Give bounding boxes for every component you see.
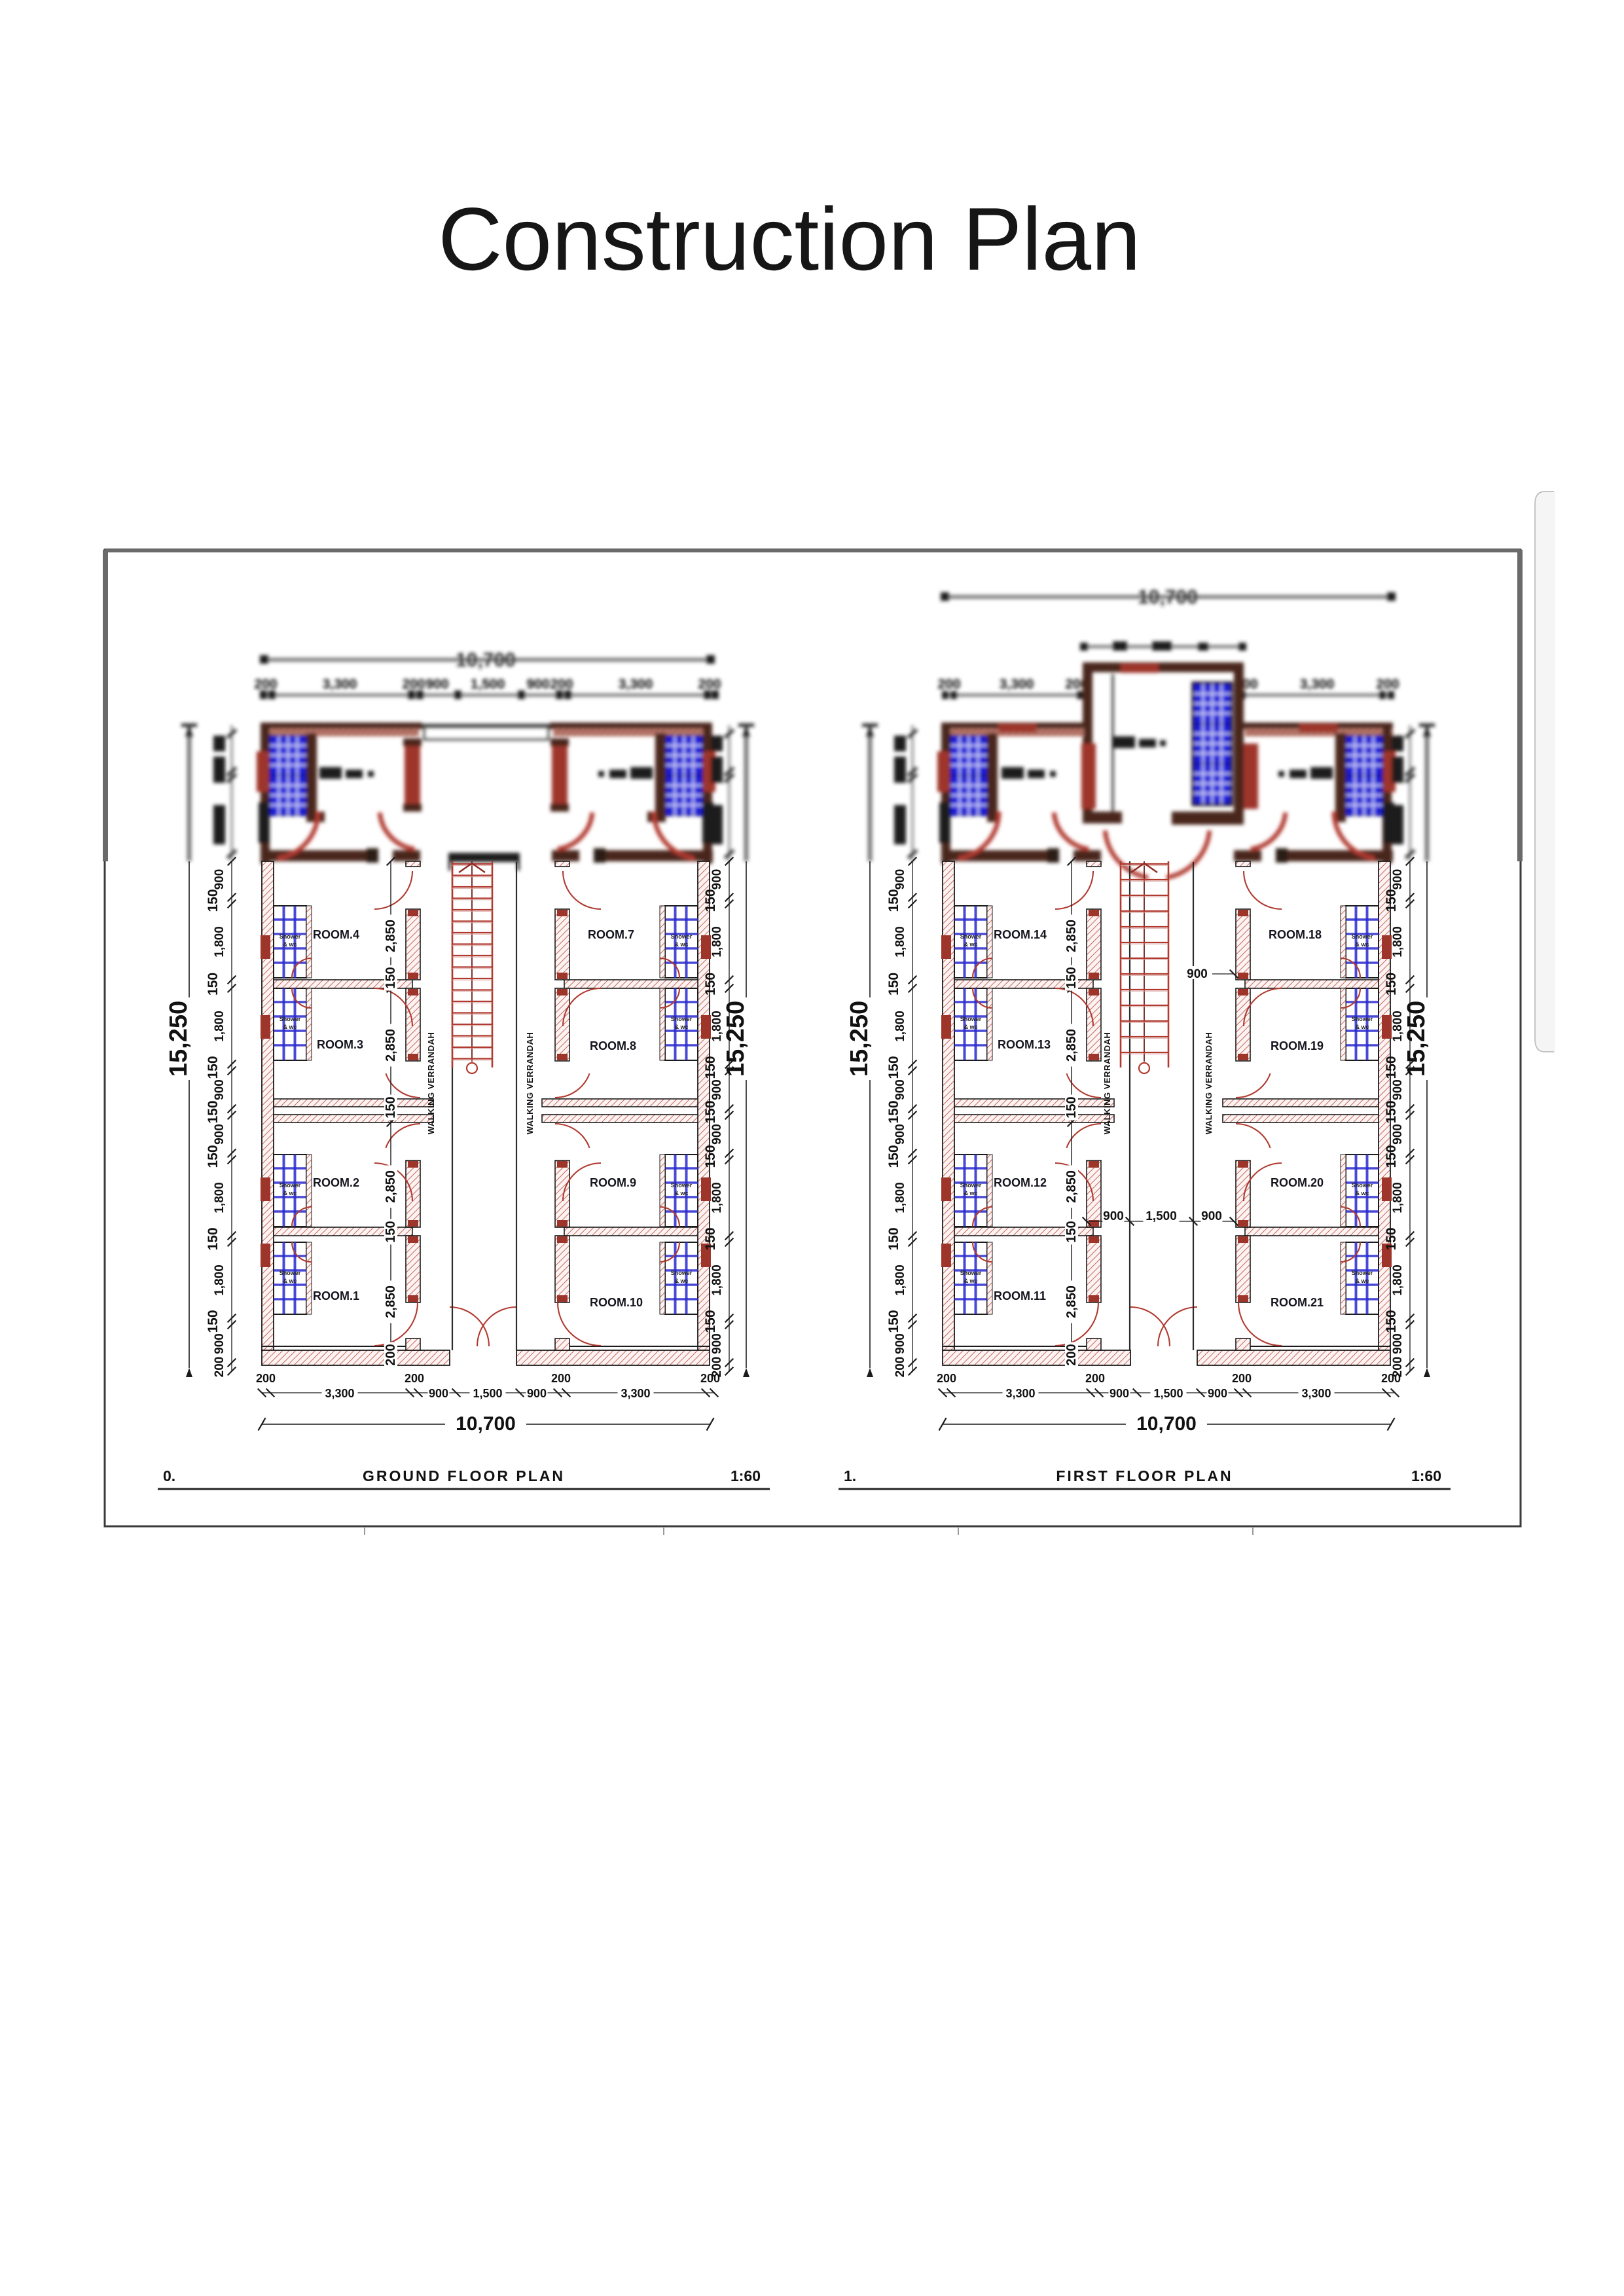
svg-text:1,500: 1,500 xyxy=(471,677,505,692)
svg-text:2,850: 2,850 xyxy=(384,1285,398,1318)
svg-text:900: 900 xyxy=(213,869,226,890)
svg-text:900: 900 xyxy=(893,869,907,890)
svg-text:150: 150 xyxy=(206,1145,221,1168)
svg-text:900: 900 xyxy=(1201,1210,1222,1223)
svg-text:& wc: & wc xyxy=(674,1190,688,1196)
svg-text:200: 200 xyxy=(1085,1372,1105,1385)
svg-text:150: 150 xyxy=(1064,1096,1079,1118)
svg-text:ROOM.7: ROOM.7 xyxy=(588,928,634,941)
svg-text:2,850: 2,850 xyxy=(384,1029,398,1062)
svg-text:900: 900 xyxy=(213,1079,226,1100)
svg-text:900: 900 xyxy=(1103,1210,1124,1223)
svg-text:Shower: Shower xyxy=(671,1182,693,1189)
svg-text:900: 900 xyxy=(893,1079,907,1100)
svg-text:ROOM.8: ROOM.8 xyxy=(590,1039,636,1052)
svg-text:Shower: Shower xyxy=(280,1270,301,1276)
svg-text:3,300: 3,300 xyxy=(1300,677,1335,692)
svg-text:Shower: Shower xyxy=(1352,1016,1373,1022)
svg-text:& wc: & wc xyxy=(283,1024,297,1030)
svg-text:150: 150 xyxy=(206,889,221,912)
svg-text:150: 150 xyxy=(703,1310,718,1333)
svg-text:1,800: 1,800 xyxy=(1391,1265,1405,1296)
svg-text:ROOM.11: ROOM.11 xyxy=(994,1289,1046,1302)
svg-text:900: 900 xyxy=(429,1387,448,1400)
svg-text:150: 150 xyxy=(703,973,718,996)
svg-text:ROOM.3: ROOM.3 xyxy=(317,1038,363,1051)
svg-text:Shower: Shower xyxy=(280,1016,301,1022)
svg-text:15,250: 15,250 xyxy=(165,1001,192,1077)
svg-text:& wc: & wc xyxy=(674,1278,688,1284)
svg-text:Construction Plan: Construction Plan xyxy=(438,189,1140,289)
svg-text:& wc: & wc xyxy=(1355,1278,1369,1284)
svg-text:Shower: Shower xyxy=(671,933,693,940)
svg-text:1,800: 1,800 xyxy=(213,1011,226,1042)
svg-text:& wc: & wc xyxy=(674,941,688,948)
svg-text:150: 150 xyxy=(206,973,221,996)
svg-text:900: 900 xyxy=(710,869,724,890)
svg-text:3,300: 3,300 xyxy=(1005,1387,1035,1400)
svg-text:ROOM.10: ROOM.10 xyxy=(590,1296,643,1309)
svg-text:150: 150 xyxy=(1384,1056,1399,1079)
svg-text:900: 900 xyxy=(213,1124,226,1145)
svg-text:2,850: 2,850 xyxy=(384,920,398,952)
svg-text:150: 150 xyxy=(206,1227,221,1250)
svg-text:Shower: Shower xyxy=(960,933,982,940)
svg-text:& wc: & wc xyxy=(964,941,977,948)
svg-text:1,800: 1,800 xyxy=(893,1011,907,1042)
svg-text:1,500: 1,500 xyxy=(1146,1210,1177,1223)
svg-text:0.: 0. xyxy=(163,1467,175,1484)
svg-text:150: 150 xyxy=(886,1056,901,1079)
svg-text:2,850: 2,850 xyxy=(1064,1029,1079,1062)
svg-text:900: 900 xyxy=(1208,1387,1227,1400)
svg-text:10,700: 10,700 xyxy=(456,649,516,671)
svg-text:3,300: 3,300 xyxy=(621,1387,650,1400)
svg-text:ROOM.20: ROOM.20 xyxy=(1271,1176,1324,1189)
svg-text:200: 200 xyxy=(937,1372,956,1385)
svg-text:200: 200 xyxy=(405,1372,424,1385)
svg-text:150: 150 xyxy=(886,1227,901,1250)
svg-text:1,800: 1,800 xyxy=(893,1182,907,1213)
svg-text:900: 900 xyxy=(1391,869,1405,890)
svg-text:2,850: 2,850 xyxy=(1064,1170,1079,1203)
svg-text:2,850: 2,850 xyxy=(1064,1285,1079,1318)
svg-text:150: 150 xyxy=(384,967,398,988)
svg-text:150: 150 xyxy=(1384,1145,1399,1168)
svg-text:2,850: 2,850 xyxy=(384,1170,398,1203)
svg-text:Shower: Shower xyxy=(960,1182,982,1189)
svg-text:ROOM.14: ROOM.14 xyxy=(994,928,1047,941)
svg-text:15,250: 15,250 xyxy=(1403,1001,1430,1077)
svg-text:Shower: Shower xyxy=(671,1270,693,1276)
svg-text:1,800: 1,800 xyxy=(893,926,907,958)
svg-text:& wc: & wc xyxy=(964,1024,977,1030)
svg-text:150: 150 xyxy=(206,1310,221,1333)
svg-text:900: 900 xyxy=(710,1124,724,1145)
svg-text:ROOM.9: ROOM.9 xyxy=(590,1176,636,1189)
svg-text:900: 900 xyxy=(1391,1333,1405,1354)
svg-text:900: 900 xyxy=(1391,1079,1405,1100)
svg-text:3,300: 3,300 xyxy=(1301,1387,1331,1400)
svg-text:ROOM.19: ROOM.19 xyxy=(1271,1039,1324,1052)
svg-text:3,300: 3,300 xyxy=(323,677,357,692)
svg-text:1,800: 1,800 xyxy=(710,1182,724,1213)
svg-text:WALKING VERRANDAH: WALKING VERRANDAH xyxy=(1102,1032,1112,1135)
svg-text:1,800: 1,800 xyxy=(893,1265,907,1296)
svg-text:150: 150 xyxy=(1064,1221,1079,1242)
svg-text:WALKING VERRANDAH: WALKING VERRANDAH xyxy=(1204,1032,1214,1135)
svg-text:& wc: & wc xyxy=(674,1024,688,1030)
svg-text:900: 900 xyxy=(710,1079,724,1100)
svg-text:Shower: Shower xyxy=(1352,1270,1373,1276)
svg-text:1,500: 1,500 xyxy=(1153,1387,1183,1400)
svg-text:WALKING VERRANDAH: WALKING VERRANDAH xyxy=(525,1032,535,1135)
svg-text:& wc: & wc xyxy=(964,1278,977,1284)
svg-text:WALKING VERRANDAH: WALKING VERRANDAH xyxy=(426,1032,436,1135)
svg-text:10,700: 10,700 xyxy=(1136,1413,1197,1435)
svg-text:200: 200 xyxy=(1381,1372,1401,1385)
svg-text:1.: 1. xyxy=(844,1467,856,1484)
svg-text:ROOM.21: ROOM.21 xyxy=(1271,1296,1324,1309)
svg-text:1,800: 1,800 xyxy=(213,1265,226,1296)
svg-text:150: 150 xyxy=(1384,1100,1399,1123)
svg-text:200: 200 xyxy=(698,677,721,692)
svg-text:& wc: & wc xyxy=(283,941,297,948)
svg-text:150: 150 xyxy=(886,889,901,912)
svg-text:1,800: 1,800 xyxy=(213,1182,226,1213)
svg-text:ROOM.1: ROOM.1 xyxy=(313,1289,359,1302)
svg-text:200: 200 xyxy=(1064,1344,1079,1365)
svg-text:3,300: 3,300 xyxy=(325,1387,354,1400)
svg-text:15,250: 15,250 xyxy=(846,1001,873,1077)
svg-text:3,300: 3,300 xyxy=(619,677,653,692)
svg-text:10,700: 10,700 xyxy=(456,1413,516,1435)
svg-text:900: 900 xyxy=(1391,1124,1405,1145)
svg-text:200: 200 xyxy=(256,1372,276,1385)
svg-text:1:60: 1:60 xyxy=(731,1467,761,1484)
svg-text:& wc: & wc xyxy=(1355,941,1369,948)
svg-text:& wc: & wc xyxy=(1355,1024,1369,1030)
svg-text:Shower: Shower xyxy=(960,1016,982,1022)
svg-text:10,700: 10,700 xyxy=(1138,586,1198,608)
svg-text:ROOM.13: ROOM.13 xyxy=(998,1038,1051,1051)
svg-text:Shower: Shower xyxy=(280,1182,301,1189)
svg-text:900: 900 xyxy=(893,1124,907,1145)
svg-text:150: 150 xyxy=(703,1145,718,1168)
svg-text:Shower: Shower xyxy=(1352,1182,1373,1189)
svg-text:150: 150 xyxy=(886,1145,901,1168)
svg-text:ROOM.2: ROOM.2 xyxy=(313,1176,359,1189)
svg-text:150: 150 xyxy=(1064,967,1079,988)
svg-text:Shower: Shower xyxy=(960,1270,982,1276)
svg-text:& wc: & wc xyxy=(964,1190,977,1196)
svg-text:900: 900 xyxy=(1110,1387,1129,1400)
svg-text:200: 200 xyxy=(893,1357,907,1378)
svg-text:& wc: & wc xyxy=(283,1190,297,1196)
svg-text:900: 900 xyxy=(893,1333,907,1354)
svg-text:1,800: 1,800 xyxy=(710,1265,724,1296)
svg-text:ROOM.18: ROOM.18 xyxy=(1269,928,1322,941)
svg-text:200: 200 xyxy=(213,1357,226,1378)
svg-text:900: 900 xyxy=(425,677,448,692)
svg-text:150: 150 xyxy=(886,973,901,996)
svg-text:200: 200 xyxy=(384,1344,398,1365)
svg-text:2,850: 2,850 xyxy=(1064,920,1079,952)
svg-text:GROUND FLOOR PLAN: GROUND FLOOR PLAN xyxy=(363,1467,565,1484)
svg-text:200: 200 xyxy=(937,677,960,692)
svg-text:150: 150 xyxy=(384,1096,398,1118)
svg-text:1,800: 1,800 xyxy=(710,926,724,958)
svg-text:150: 150 xyxy=(206,1100,221,1123)
svg-text:150: 150 xyxy=(1384,973,1399,996)
svg-text:15,250: 15,250 xyxy=(722,1001,749,1077)
svg-text:900: 900 xyxy=(710,1333,724,1354)
svg-text:ROOM.4: ROOM.4 xyxy=(313,928,359,941)
svg-text:200: 200 xyxy=(402,677,425,692)
svg-text:& wc: & wc xyxy=(283,1278,297,1284)
svg-text:Shower: Shower xyxy=(1352,933,1373,940)
svg-text:1,800: 1,800 xyxy=(1391,926,1405,958)
svg-text:FIRST FLOOR PLAN: FIRST FLOOR PLAN xyxy=(1056,1467,1233,1484)
svg-text:900: 900 xyxy=(1187,967,1208,981)
svg-text:Shower: Shower xyxy=(671,1016,693,1022)
svg-text:200: 200 xyxy=(550,677,573,692)
svg-text:Shower: Shower xyxy=(280,933,301,940)
svg-text:1,500: 1,500 xyxy=(473,1387,502,1400)
svg-text:1,800: 1,800 xyxy=(213,926,226,958)
svg-text:200: 200 xyxy=(700,1372,720,1385)
svg-text:150: 150 xyxy=(886,1310,901,1333)
svg-text:1:60: 1:60 xyxy=(1411,1467,1441,1484)
svg-text:150: 150 xyxy=(703,1100,718,1123)
svg-text:1,800: 1,800 xyxy=(1391,1182,1405,1213)
svg-text:150: 150 xyxy=(384,1221,398,1242)
svg-text:ROOM.12: ROOM.12 xyxy=(994,1176,1047,1189)
svg-text:900: 900 xyxy=(527,1387,547,1400)
svg-text:150: 150 xyxy=(1384,889,1399,912)
svg-text:3,300: 3,300 xyxy=(1000,677,1034,692)
svg-text:200: 200 xyxy=(254,677,277,692)
svg-text:200: 200 xyxy=(551,1372,571,1385)
svg-text:& wc: & wc xyxy=(1355,1190,1369,1196)
svg-text:150: 150 xyxy=(1384,1227,1399,1250)
svg-text:150: 150 xyxy=(703,1227,718,1250)
svg-text:900: 900 xyxy=(213,1333,226,1354)
svg-text:150: 150 xyxy=(886,1100,901,1123)
svg-text:150: 150 xyxy=(703,1056,718,1079)
svg-text:900: 900 xyxy=(526,677,549,692)
svg-text:150: 150 xyxy=(1384,1310,1399,1333)
svg-text:200: 200 xyxy=(1232,1372,1252,1385)
svg-text:200: 200 xyxy=(1376,677,1399,692)
svg-text:150: 150 xyxy=(703,889,718,912)
svg-text:150: 150 xyxy=(206,1056,221,1079)
